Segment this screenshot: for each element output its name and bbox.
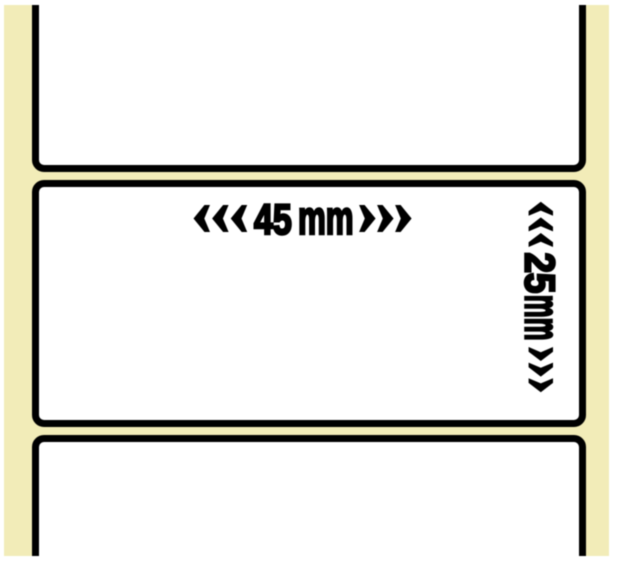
svg-text:25: 25 (516, 253, 563, 294)
svg-text:mm: mm (298, 193, 354, 245)
svg-text:45: 45 (254, 196, 292, 244)
svg-text:mm: mm (514, 295, 568, 341)
